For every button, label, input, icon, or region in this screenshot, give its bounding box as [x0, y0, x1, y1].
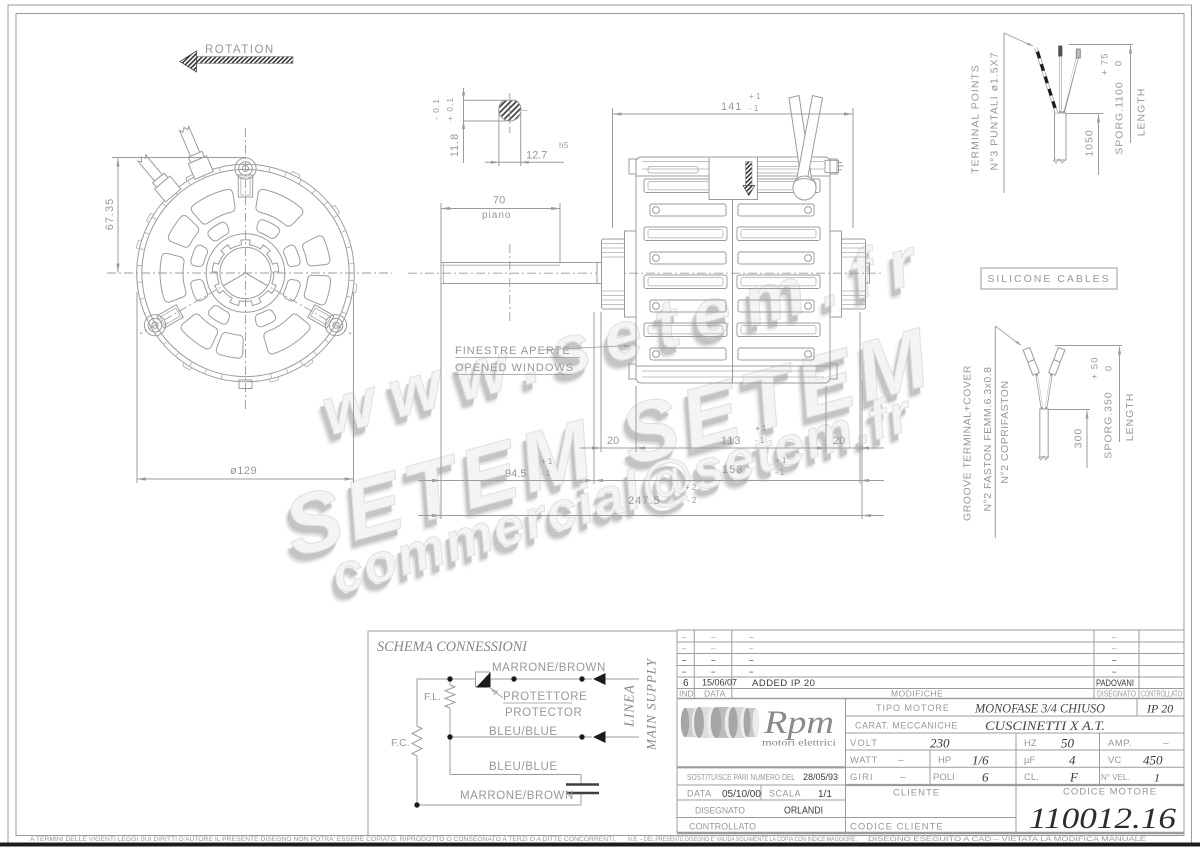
svg-text:20: 20	[607, 435, 619, 447]
svg-text:DISEGNATO: DISEGNATO	[695, 806, 745, 816]
svg-text:6: 6	[683, 678, 689, 689]
svg-text:110012.16: 110012.16	[1029, 802, 1176, 835]
svg-text:450: 450	[1143, 753, 1163, 768]
svg-text:MODIFICHE: MODIFICHE	[891, 689, 943, 699]
svg-text:TERMINAL POINTS: TERMINAL POINTS	[970, 64, 982, 174]
svg-text:12.7: 12.7	[526, 150, 547, 162]
svg-text:POLI: POLI	[933, 772, 955, 783]
svg-text:247.5: 247.5	[628, 495, 661, 507]
svg-text:HP: HP	[938, 755, 951, 766]
svg-text:CODICE MOTORE: CODICE MOTORE	[1063, 787, 1157, 798]
svg-text:DISEGNO ESEGUITO A CAD – VIETA: DISEGNO ESEGUITO A CAD – VIETATA LA MODI…	[868, 836, 1147, 843]
svg-text:- 0.1: - 0.1	[431, 98, 441, 120]
svg-text:N.B. – DEL PRESENTE DISEGNO E': N.B. – DEL PRESENTE DISEGNO E' VALIDA SO…	[628, 836, 857, 843]
svg-text:DATA: DATA	[704, 689, 726, 699]
svg-text:F: F	[1069, 770, 1079, 785]
svg-text:153: 153	[722, 464, 743, 476]
svg-text:SPORG.350: SPORG.350	[1103, 391, 1115, 458]
svg-text:–: –	[1112, 656, 1117, 665]
svg-text:F.L.: F.L.	[424, 691, 441, 703]
svg-text:HZ: HZ	[1024, 738, 1037, 749]
svg-text:0: 0	[1113, 60, 1124, 66]
svg-text:F.C.: F.C.	[391, 737, 410, 749]
svg-text:–: –	[711, 644, 716, 653]
svg-text:1/1: 1/1	[818, 789, 832, 800]
svg-text:–: –	[682, 644, 687, 653]
svg-text:CONTROLLATO: CONTROLLATO	[689, 822, 756, 832]
svg-text:LINEA: LINEA	[622, 684, 637, 728]
svg-text:05/10/00: 05/10/00	[722, 789, 761, 800]
svg-text:BLEU/BLUE: BLEU/BLUE	[489, 761, 558, 773]
svg-text:CARAT. MECCANICHE: CARAT. MECCANICHE	[855, 721, 958, 731]
svg-text:LENGTH: LENGTH	[1136, 88, 1148, 137]
svg-text:–: –	[749, 633, 754, 642]
svg-text:ROTATION: ROTATION	[205, 44, 275, 56]
svg-text:+ 1: + 1	[755, 424, 767, 433]
svg-text:motori elettrici: motori elettrici	[762, 739, 836, 749]
svg-text:113: 113	[721, 435, 742, 447]
svg-text:PADOVANI: PADOVANI	[1096, 678, 1134, 688]
svg-text:N° VEL.: N° VEL.	[1101, 773, 1130, 782]
svg-text:–: –	[749, 668, 754, 677]
svg-text:h5: h5	[559, 140, 569, 150]
svg-text:SILICONE CABLES: SILICONE CABLES	[987, 273, 1110, 285]
svg-text:PROTETTORE: PROTETTORE	[503, 691, 587, 703]
svg-text:DATA: DATA	[687, 789, 712, 799]
svg-text:GROOVE TERMINAL+COVER: GROOVE TERMINAL+COVER	[962, 365, 974, 521]
svg-text:WATT: WATT	[850, 755, 878, 766]
svg-text:IND: IND	[679, 689, 694, 699]
svg-text:IP 20: IP 20	[1146, 702, 1173, 716]
svg-text:- 1: - 1	[775, 468, 785, 477]
svg-text:N°2 COPRIFASTON: N°2 COPRIFASTON	[999, 380, 1011, 483]
svg-text:VOLT: VOLT	[850, 738, 878, 749]
svg-text:DISEGNATO: DISEGNATO	[1097, 690, 1136, 699]
svg-text:+ 2: + 2	[685, 483, 697, 492]
svg-text:MARRONE/BROWN: MARRONE/BROWN	[460, 790, 574, 802]
svg-text:–: –	[900, 772, 906, 783]
svg-text:+ 50: + 50	[1089, 357, 1100, 380]
svg-text:–: –	[749, 644, 754, 653]
svg-text:–: –	[682, 668, 687, 677]
svg-text:141: 141	[721, 101, 742, 113]
svg-text:CL.: CL.	[1024, 772, 1039, 783]
svg-text:15/06/07: 15/06/07	[702, 678, 737, 688]
svg-text:GIRI: GIRI	[850, 772, 874, 783]
svg-text:–: –	[711, 668, 716, 677]
svg-text:BLEU/BLUE: BLEU/BLUE	[489, 726, 558, 738]
svg-text:–: –	[711, 633, 716, 642]
svg-text:1/6: 1/6	[972, 753, 989, 768]
svg-text:CLIENTE: CLIENTE	[893, 788, 940, 799]
svg-text:CONTROLLATO: CONTROLLATO	[1141, 690, 1182, 699]
svg-text:1: 1	[1154, 771, 1160, 785]
svg-text:A TERMINI DELLE VIGENTI LEGGI: A TERMINI DELLE VIGENTI LEGGI SUI DIRITT…	[30, 836, 616, 843]
svg-text:–: –	[1112, 644, 1117, 653]
svg-text:20: 20	[833, 435, 845, 447]
svg-text:+ 0.1: + 0.1	[445, 97, 455, 121]
svg-text:- 1: - 1	[749, 104, 759, 113]
svg-text:–: –	[898, 755, 904, 766]
svg-text:–: –	[682, 633, 687, 642]
svg-text:–: –	[1163, 738, 1169, 749]
svg-text:ø129: ø129	[230, 465, 257, 477]
svg-text:4: 4	[1069, 753, 1076, 768]
svg-text:- 2: - 2	[687, 496, 697, 505]
svg-text:0: 0	[1103, 365, 1114, 371]
svg-text:VC: VC	[1108, 755, 1121, 766]
svg-text:+ 1: + 1	[775, 456, 787, 465]
svg-text:11.8: 11.8	[449, 133, 461, 158]
svg-text:µF: µF	[1024, 755, 1035, 766]
svg-text:- 1: - 1	[541, 469, 551, 478]
svg-text:OPENED WINDOWS: OPENED WINDOWS	[455, 362, 574, 374]
svg-text:MARRONE/BROWN: MARRONE/BROWN	[492, 662, 606, 674]
svg-text:+ 1: + 1	[749, 92, 761, 101]
svg-text:TIPO MOTORE: TIPO MOTORE	[876, 703, 950, 713]
svg-text:ADDED IP 20: ADDED IP 20	[752, 678, 815, 689]
svg-text:MONOFASE 3/4 CHIUSO: MONOFASE 3/4 CHIUSO	[974, 702, 1105, 716]
svg-text:67.35: 67.35	[104, 198, 116, 231]
svg-text:50: 50	[1061, 736, 1075, 751]
svg-text:N°3 PUNTALI ø1.5X7: N°3 PUNTALI ø1.5X7	[989, 52, 1001, 171]
svg-text:–: –	[1112, 633, 1117, 642]
svg-text:–: –	[711, 656, 716, 665]
svg-text:28/05/93: 28/05/93	[803, 772, 838, 782]
svg-text:–: –	[749, 656, 754, 665]
svg-text:AMP.: AMP.	[1108, 738, 1132, 749]
svg-text:SCALA: SCALA	[769, 789, 801, 799]
svg-text:Rpm: Rpm	[763, 705, 834, 741]
svg-text:N°2 FASTON FEMM.6.3x0.8: N°2 FASTON FEMM.6.3x0.8	[982, 366, 994, 511]
svg-text:- 1: - 1	[755, 436, 765, 445]
svg-text:230: 230	[930, 736, 950, 751]
svg-text:6: 6	[982, 770, 989, 785]
svg-text:+ 1: + 1	[541, 457, 553, 466]
svg-text:+ 75: + 75	[1099, 53, 1110, 76]
svg-text:SOSTITUISCE PARI NUMERO DEL: SOSTITUISCE PARI NUMERO DEL	[687, 772, 795, 782]
svg-text:PROTECTOR: PROTECTOR	[505, 707, 582, 719]
svg-text:ORLANDI: ORLANDI	[784, 806, 823, 817]
svg-text:94.5: 94.5	[505, 468, 526, 480]
svg-text:1050: 1050	[1084, 129, 1096, 156]
svg-text:FINESTRE APERTE: FINESTRE APERTE	[455, 345, 571, 357]
svg-text:–: –	[1112, 668, 1117, 677]
svg-text:SCHEMA CONNESSIONI: SCHEMA CONNESSIONI	[377, 639, 528, 655]
svg-text:CODICE CLIENTE: CODICE CLIENTE	[850, 822, 944, 833]
svg-text:CUSCINETTI X A.T.: CUSCINETTI X A.T.	[985, 718, 1105, 733]
svg-text:–: –	[682, 656, 687, 665]
svg-text:SPORG.1100: SPORG.1100	[1114, 81, 1126, 154]
svg-text:LENGTH: LENGTH	[1124, 393, 1136, 442]
svg-text:70: 70	[493, 195, 505, 207]
svg-text:300: 300	[1073, 428, 1085, 449]
svg-text:piano: piano	[482, 210, 511, 221]
svg-text:MAIN SUPPLY: MAIN SUPPLY	[644, 657, 659, 751]
